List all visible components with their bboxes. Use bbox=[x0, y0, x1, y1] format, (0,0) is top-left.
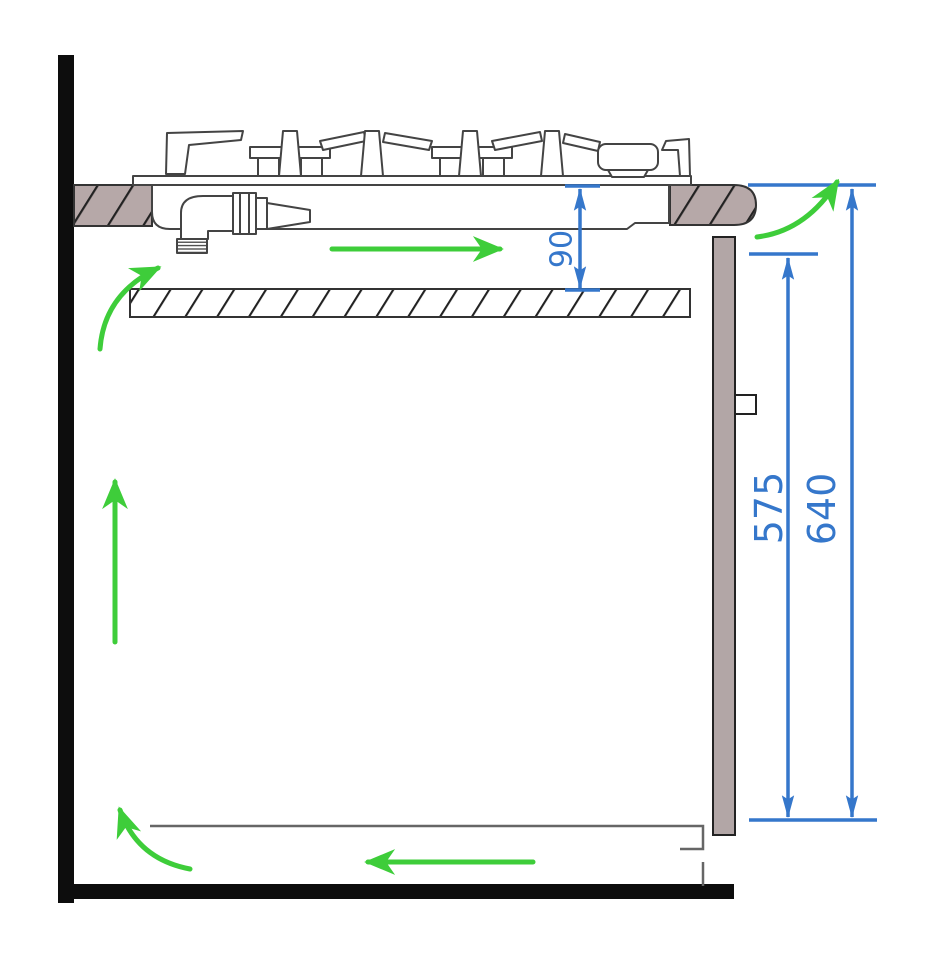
airflow-top-right-curve-up-arrow bbox=[757, 182, 837, 237]
wall-section bbox=[58, 55, 74, 903]
pan-support-left bbox=[166, 131, 243, 174]
pan-support-finger-4 bbox=[541, 131, 563, 176]
gas-hex-nut bbox=[233, 193, 256, 234]
dim-640-label: 640 bbox=[800, 473, 844, 546]
pan-support-finger-2 bbox=[361, 131, 383, 176]
gas-elbow-pipe bbox=[181, 196, 233, 239]
countertop-left bbox=[74, 185, 152, 226]
pan-support-right-a bbox=[492, 132, 542, 150]
airflow-bottom-left-curve-up-arrow bbox=[120, 810, 190, 869]
floor-section bbox=[58, 884, 734, 899]
lower-shelf bbox=[130, 289, 690, 317]
pan-support-mid-left bbox=[320, 132, 366, 150]
burner-3-cap bbox=[598, 144, 658, 170]
dim-575-label: 575 bbox=[747, 472, 791, 545]
pan-support-finger-3 bbox=[459, 131, 481, 176]
pan-support-far-right bbox=[662, 139, 690, 176]
countertop-right bbox=[670, 185, 756, 225]
gas-flange bbox=[256, 198, 267, 229]
cabinet-base-lines bbox=[150, 826, 703, 886]
hob-top-plate bbox=[133, 176, 691, 185]
installation-diagram: 90 575 640 bbox=[0, 0, 932, 960]
gas-threaded-nipple bbox=[177, 239, 207, 253]
pan-support-right-b bbox=[563, 134, 600, 151]
pan-support-mid-right bbox=[383, 133, 432, 150]
burner-3-base bbox=[608, 170, 648, 177]
hob-assembly bbox=[133, 131, 691, 253]
panel-handle bbox=[735, 395, 756, 414]
diagram-svg: 90 575 640 bbox=[0, 0, 932, 960]
vertical-panel bbox=[713, 237, 735, 835]
cabinet-base-step bbox=[150, 826, 703, 849]
pan-support-finger-1 bbox=[279, 131, 301, 176]
dim-90-label: 90 bbox=[545, 230, 580, 268]
